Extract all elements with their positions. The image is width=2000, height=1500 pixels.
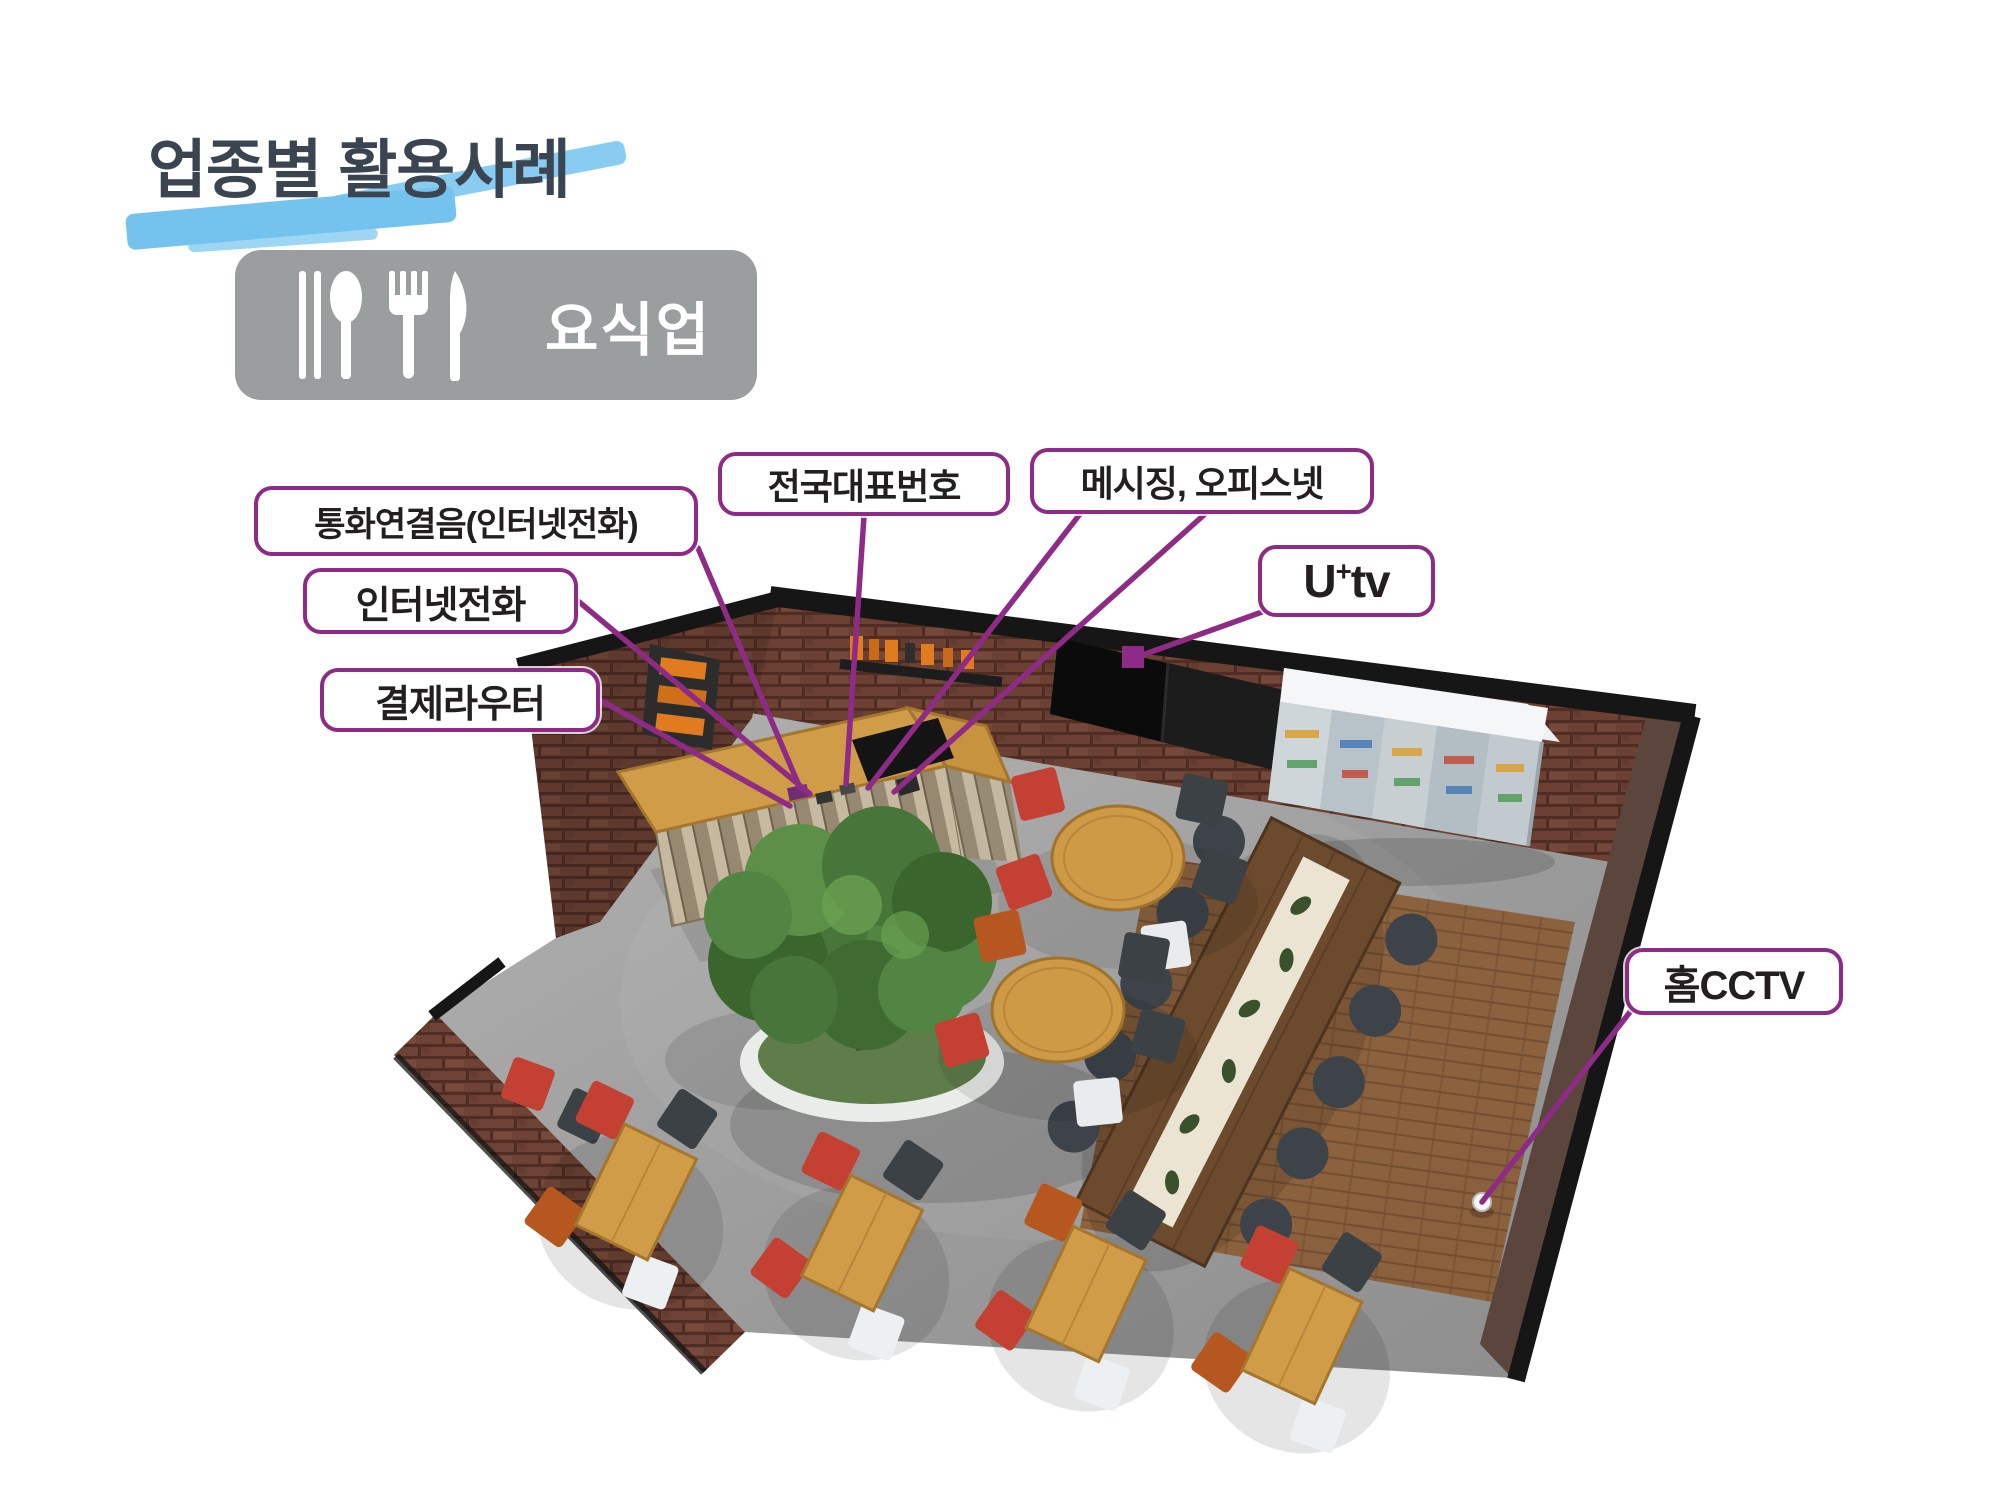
brochure-page: 업종별 활용사례 요식업 — [0, 0, 2000, 1500]
cctv-camera — [1470, 1193, 1494, 1218]
callout-home-cctv: 홈CCTV — [1625, 948, 1843, 1015]
restaurant-floorplan — [0, 0, 2000, 1500]
callout-home-cctv-label: 홈CCTV — [1664, 953, 1805, 1011]
callout-payment-router-label: 결제라우터 — [375, 673, 545, 728]
callout-payment-router: 결제라우터 — [320, 668, 600, 732]
callout-utv: U+tv — [1258, 545, 1435, 617]
callout-national-number-label: 전국대표번호 — [768, 458, 961, 510]
callout-internet-phone-label: 인터넷전화 — [356, 574, 526, 629]
callout-national-number: 전국대표번호 — [718, 452, 1010, 516]
callout-utv-label: U+tv — [1303, 554, 1389, 608]
callout-ring-tone-label: 통화연결음(인터넷전화) — [314, 497, 637, 546]
callout-ring-tone: 통화연결음(인터넷전화) — [254, 486, 698, 556]
left-wall-shelf — [642, 644, 720, 750]
utv-marker — [1122, 646, 1144, 668]
callout-messaging: 메시징, 오피스넷 — [1030, 448, 1374, 514]
callout-internet-phone: 인터넷전화 — [303, 568, 578, 634]
callout-messaging-label: 메시징, 오피스넷 — [1081, 455, 1324, 507]
